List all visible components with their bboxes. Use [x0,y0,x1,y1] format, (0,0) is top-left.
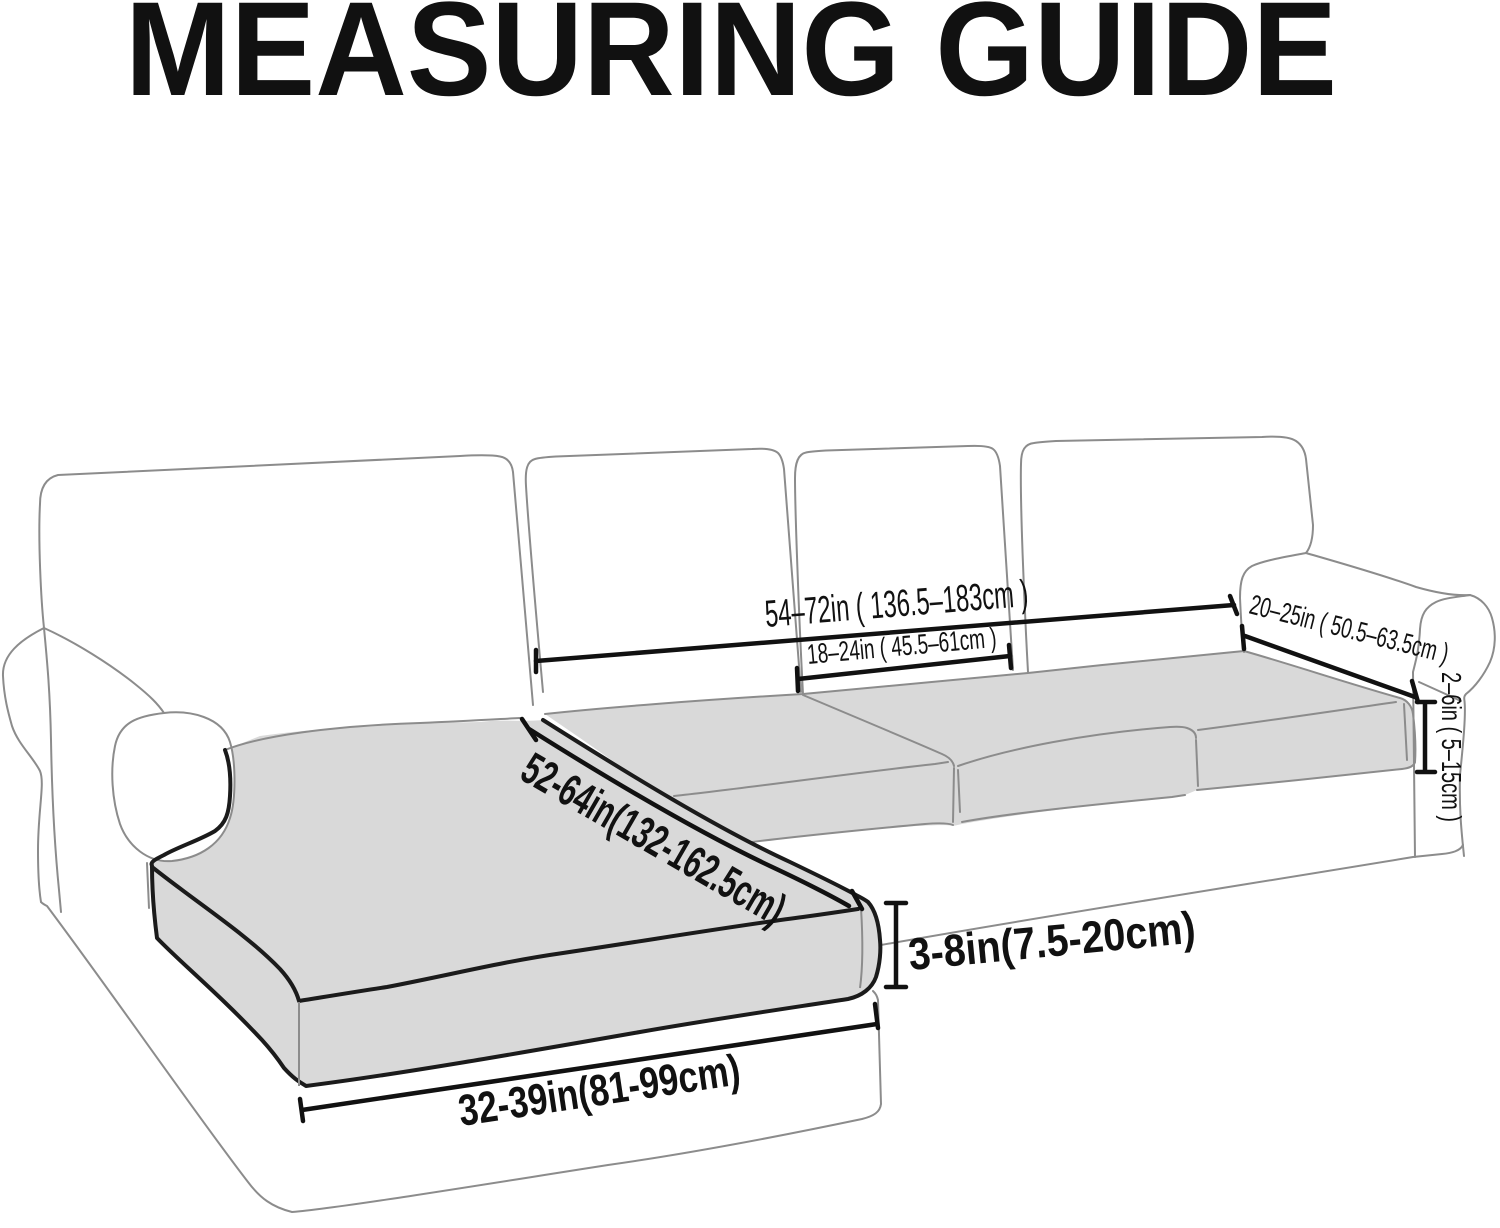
svg-text:MEASURING GUIDE: MEASURING GUIDE [125,0,1337,124]
svg-text:2–6in ( 5–15cm ): 2–6in ( 5–15cm ) [1436,672,1467,822]
